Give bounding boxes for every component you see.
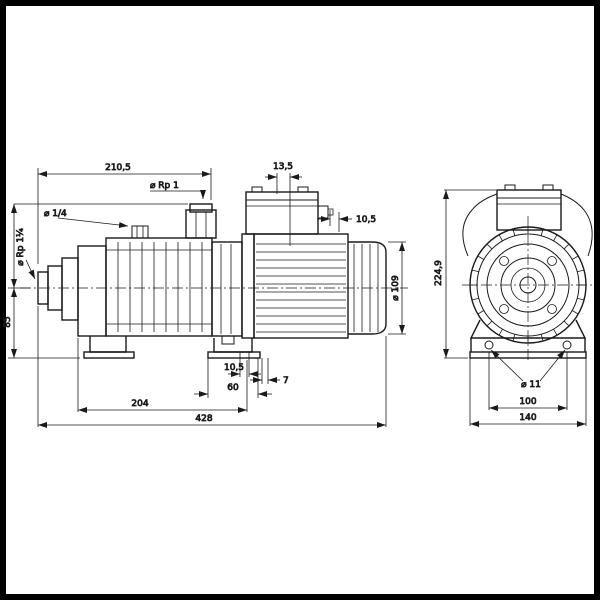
suction-housing	[62, 246, 106, 336]
dim-total-length-label: 428	[195, 414, 212, 424]
side-view	[20, 187, 408, 358]
terminal-box	[246, 187, 333, 234]
drawing-canvas: 210,5 ⌀ Rp 1 ⌀ 1/4 13,5 10,5	[0, 0, 600, 600]
front-view-dimensions: 224,9 ⌀ 11 100 140	[434, 190, 586, 426]
vent-plug-label: ⌀ 1/4	[44, 209, 67, 219]
dim-foot-hole-spacing-label: 100	[519, 397, 536, 407]
side-view-dimensions: 210,5 ⌀ Rp 1 ⌀ 1/4 13,5 10,5	[3, 162, 406, 427]
dim-rear-gap: 10,5	[317, 210, 376, 232]
dim-vent-plug: ⌀ 1/4	[44, 209, 128, 226]
dim-centerline-height-label: 85	[3, 316, 13, 327]
dim-foot-step-label: 7	[283, 376, 289, 386]
dim-rear-gap-label: 10,5	[356, 215, 376, 225]
front-view	[462, 185, 592, 360]
cowl-wings	[463, 194, 592, 256]
dim-rear-foot-length-label: 60	[227, 383, 239, 393]
dim-foot-hole-offset: 10,5	[224, 358, 261, 377]
discharge-port	[186, 204, 216, 238]
dim-motor-diameter-label: ⌀ 109	[391, 275, 401, 301]
dim-top-length-label: 210,5	[105, 163, 131, 173]
dim-total-height-label: 224,9	[434, 260, 444, 286]
dim-body-length: 204	[78, 338, 247, 412]
dim-foot-step: 7	[250, 358, 289, 386]
dim-foot-hole-offset-label: 10,5	[224, 363, 244, 373]
stage-casing	[106, 238, 212, 336]
dim-body-length-label: 204	[131, 399, 148, 409]
dim-cable-entry-label: 13,5	[273, 162, 293, 172]
dim-total-height: 224,9	[434, 190, 496, 358]
front-terminal-box	[497, 185, 561, 230]
dim-foot-width: 140	[470, 358, 586, 426]
dim-left-heights: ⌀ Rp 1¼ 85	[3, 204, 188, 358]
dim-discharge-port: ⌀ Rp 1	[150, 181, 203, 199]
dim-foot-hole-diameter-label: ⌀ 11	[521, 380, 541, 390]
pump-dimensional-drawing: 210,5 ⌀ Rp 1 ⌀ 1/4 13,5 10,5	[0, 0, 600, 600]
discharge-port-label: ⌀ Rp 1	[150, 181, 179, 191]
suction-port-label: ⌀ Rp 1¼	[16, 228, 26, 266]
dim-foot-width-label: 140	[519, 413, 536, 423]
vent-plug	[132, 226, 148, 238]
motor	[242, 234, 386, 338]
lantern	[212, 242, 242, 344]
